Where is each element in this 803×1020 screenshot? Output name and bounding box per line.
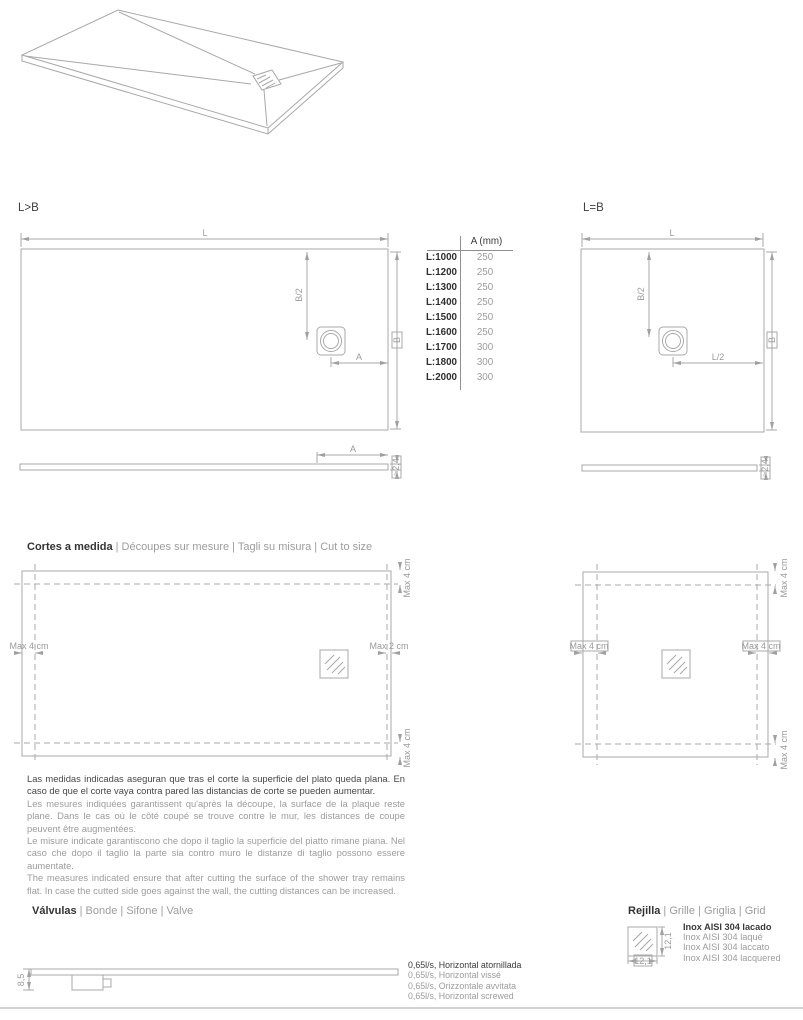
svg-text:Max 4 cm: Max 4 cm — [569, 641, 608, 651]
dim-label-l: L — [202, 228, 207, 238]
svg-text:Max 4 cm: Max 4 cm — [779, 558, 789, 597]
tray-profile — [31, 969, 398, 975]
dim-grid-width: 12,1 — [628, 955, 657, 966]
svg-text:Max 2 cm: Max 2 cm — [369, 641, 408, 651]
dim-b: B — [390, 252, 402, 429]
dim-label-height: 8,5 — [16, 974, 26, 987]
max-cut-top: Max 4 cm — [775, 558, 789, 597]
grid-specs: Inox AISI 304 lacado Inox AISI 304 laqué… — [683, 922, 781, 963]
grid-spec-line: Inox AISI 304 laccato — [683, 942, 781, 952]
plan-l-gt-b: L B/2 A B — [0, 228, 430, 445]
grid-heading-translations: | Grille | Griglia | Grid — [663, 905, 765, 917]
grid-heading-main: Rejilla — [628, 905, 660, 917]
dim-a: A — [331, 352, 388, 367]
max-cut-right: Max 2 cm — [369, 641, 408, 653]
row-a: 250 — [457, 327, 513, 338]
table-row: L:1000250 — [420, 250, 516, 265]
tray-outline — [22, 571, 391, 756]
tray-outline — [21, 249, 388, 430]
table-row: L:1500250 — [420, 310, 516, 325]
profile-left: A ≈2,4 — [20, 444, 401, 478]
cut-diagram-rect: Max 4 cm Max 2 cm Max 4 cm Max 4 cm — [0, 540, 450, 775]
row-a: 300 — [457, 342, 513, 353]
drain-icon — [253, 70, 281, 90]
valve-profile-drawing: 8,5 — [0, 940, 430, 1005]
drain-icon — [662, 650, 690, 678]
table-row: L:1600250 — [420, 325, 516, 340]
table-row: L:1800300 — [420, 355, 516, 370]
tray-profile — [582, 465, 757, 471]
dim-label-b: B — [392, 337, 402, 343]
size-table-header-label: A (mm) — [460, 234, 513, 249]
valve-heading-main: Válvulas — [32, 905, 77, 917]
grid-spec-line: Inox AISI 304 laqué — [683, 932, 781, 942]
size-table: A (mm) L:1000250 L:1200250 L:1300250 L:1… — [420, 234, 516, 385]
max-cut-right: Max 4 cm — [741, 641, 780, 653]
row-a: 250 — [457, 297, 513, 308]
svg-text:Max 4 cm: Max 4 cm — [779, 730, 789, 769]
diagram-title-l-eq-b: L=B — [583, 202, 604, 214]
row-a: 250 — [457, 252, 513, 263]
valve-body — [72, 975, 111, 990]
row-a: 300 — [457, 357, 513, 368]
side-profiles: A ≈2,4 ≈2,4 — [0, 445, 803, 490]
tray-side-edges — [22, 55, 343, 134]
dim-l2: L/2 — [673, 352, 763, 367]
table-row: L:2000300 — [420, 370, 516, 385]
dim-label-grid-height: 12,1 — [663, 932, 673, 950]
grid-spec-line: Inox AISI 304 lacquered — [683, 953, 781, 963]
dim-label-grid-width: 12,1 — [634, 956, 652, 966]
row-length: L:1700 — [420, 342, 457, 353]
cut-notes: Las medidas indicadas aseguran que tras … — [27, 773, 405, 897]
size-table-header: A (mm) — [420, 234, 516, 250]
cut-diagram-square: Max 4 cm Max 4 cm Max 4 cm Max 4 cm — [560, 540, 803, 775]
spec-sheet: L>B L B/2 A B — [0, 0, 803, 1020]
profile-right: ≈2,4 — [582, 457, 770, 479]
grid-icon — [628, 927, 657, 956]
valve-spec-line: 0,65l/s, Horizontal screwed — [408, 991, 521, 1001]
row-length: L:1800 — [420, 357, 457, 368]
diagram-title-l-gt-b: L>B — [18, 202, 39, 214]
dim-label-b2: B/2 — [294, 288, 304, 302]
table-row: L:1200250 — [420, 265, 516, 280]
max-cut-left: Max 4 cm — [9, 641, 48, 653]
note-en: The measures indicated ensure that after… — [27, 872, 405, 897]
max-cut-bottom: Max 4 cm — [400, 728, 412, 767]
table-header-rule — [427, 250, 513, 251]
row-length: L:1200 — [420, 267, 457, 278]
table-row: L:1700300 — [420, 340, 516, 355]
table-row: L:1400250 — [420, 295, 516, 310]
dim-l: L — [582, 228, 763, 247]
row-a: 300 — [457, 372, 513, 383]
valve-spec-line: 0,65l/s, Horizontal atornillada — [408, 960, 521, 970]
row-length: L:1000 — [420, 252, 457, 263]
row-length: L:1600 — [420, 327, 457, 338]
table-row: L:1300250 — [420, 280, 516, 295]
cut-lines — [575, 564, 776, 765]
row-a: 250 — [457, 267, 513, 278]
footer-divider — [0, 1007, 803, 1009]
note-fr: Les mesures indiquées garantissent qu'ap… — [27, 798, 405, 835]
dim-b2: B/2 — [636, 252, 649, 337]
drain-icon — [320, 650, 348, 678]
row-length: L:2000 — [420, 372, 457, 383]
valve-spec-line: 0,65l/s, Horizontal vissé — [408, 970, 521, 980]
valve-spec-line: 0,65l/s, Orizzontale avvitata — [408, 981, 521, 991]
dim-label-a: A — [350, 444, 356, 454]
valve-section-heading: Válvulas| Bonde | Sifone | Valve — [32, 905, 193, 917]
drain-icon — [317, 327, 345, 355]
dim-l: L — [21, 228, 388, 247]
max-cut-top: Max 4 cm — [400, 558, 412, 597]
grid-section-heading: Rejilla| Grille | Griglia | Grid — [628, 905, 766, 917]
plan-l-eq-b: L B/2 L/2 B — [560, 228, 803, 445]
drain-icon — [659, 327, 687, 355]
dim-label-thickness: ≈2,4 — [760, 459, 770, 476]
dim-b2: B/2 — [294, 252, 307, 340]
dim-label-thickness: ≈2,4 — [391, 458, 401, 475]
valve-heading-translations: | Bonde | Sifone | Valve — [80, 905, 194, 917]
cut-lines — [14, 564, 398, 763]
note-es: Las medidas indicadas aseguran que tras … — [27, 773, 405, 798]
row-length: L:1500 — [420, 312, 457, 323]
dim-b: B — [766, 252, 777, 430]
note-it: Le misure indicate garantiscono che dopo… — [27, 835, 405, 872]
svg-text:Max 4 cm: Max 4 cm — [402, 558, 412, 597]
row-length: L:1400 — [420, 297, 457, 308]
dim-label-b2: B/2 — [636, 287, 646, 301]
max-cut-bottom: Max 4 cm — [775, 730, 789, 769]
max-cut-left: Max 4 cm — [569, 641, 608, 653]
dim-label-b: B — [767, 337, 777, 343]
dim-label-l: L — [669, 228, 674, 238]
tray-outline — [581, 249, 764, 432]
iso-tray-drawing — [0, 0, 370, 150]
svg-text:Max 4 cm: Max 4 cm — [741, 641, 780, 651]
grid-spec-line: Inox AISI 304 lacado — [683, 922, 781, 932]
row-length: L:1300 — [420, 282, 457, 293]
svg-text:Max 4 cm: Max 4 cm — [402, 728, 412, 767]
svg-text:Max 4 cm: Max 4 cm — [9, 641, 48, 651]
tray-outline — [583, 572, 768, 757]
table-column-rule — [460, 236, 461, 390]
valve-specs: 0,65l/s, Horizontal atornillada 0,65l/s,… — [408, 960, 521, 1001]
dim-label-a: A — [356, 352, 362, 362]
row-a: 250 — [457, 312, 513, 323]
row-a: 250 — [457, 282, 513, 293]
dim-grid-height: 12,1 — [658, 927, 673, 956]
tray-profile — [20, 464, 388, 470]
dim-label-l2: L/2 — [712, 352, 725, 362]
